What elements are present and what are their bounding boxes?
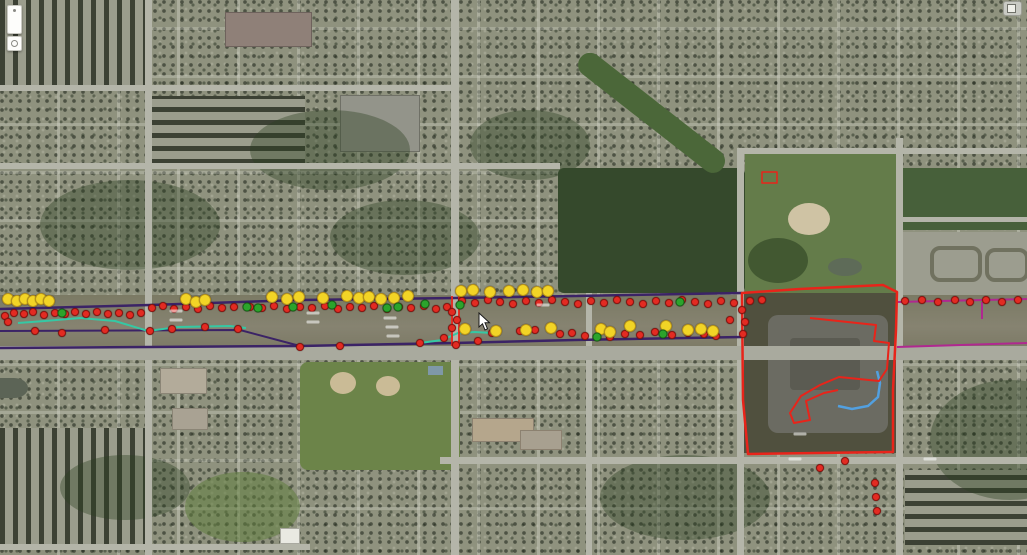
faint-map-label bbox=[307, 312, 320, 315]
faint-map-label bbox=[924, 458, 937, 461]
map-panel-toggle-icon[interactable] bbox=[1003, 1, 1022, 16]
faint-map-label bbox=[384, 317, 397, 320]
map-viewport[interactable] bbox=[0, 0, 1027, 555]
circle-target-control-icon[interactable] bbox=[7, 36, 22, 51]
faint-map-label bbox=[307, 321, 320, 324]
faint-map-label bbox=[170, 319, 183, 322]
map-pin-control[interactable] bbox=[7, 5, 22, 34]
faint-map-label bbox=[386, 326, 399, 329]
faint-map-label bbox=[537, 304, 550, 307]
faint-map-label bbox=[794, 433, 807, 436]
faint-label-layer bbox=[0, 0, 1027, 555]
faint-map-label bbox=[170, 310, 183, 313]
faint-map-label bbox=[789, 458, 802, 461]
faint-map-label bbox=[387, 335, 400, 338]
mouse-cursor bbox=[478, 312, 492, 332]
